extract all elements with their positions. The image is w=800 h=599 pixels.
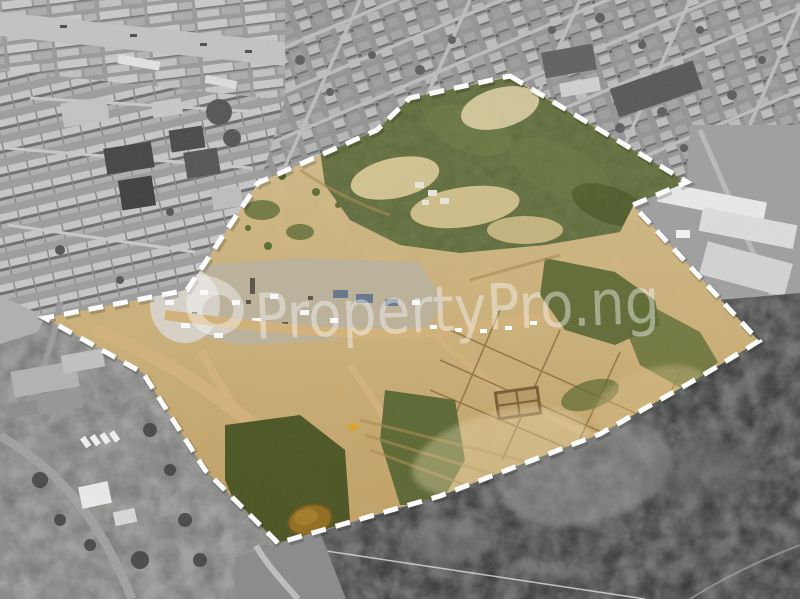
aerial-photo-canvas: PropertyPro.ng xyxy=(0,0,800,599)
aerial-photo: PropertyPro.ng xyxy=(0,0,800,599)
photo-grain xyxy=(0,0,800,599)
